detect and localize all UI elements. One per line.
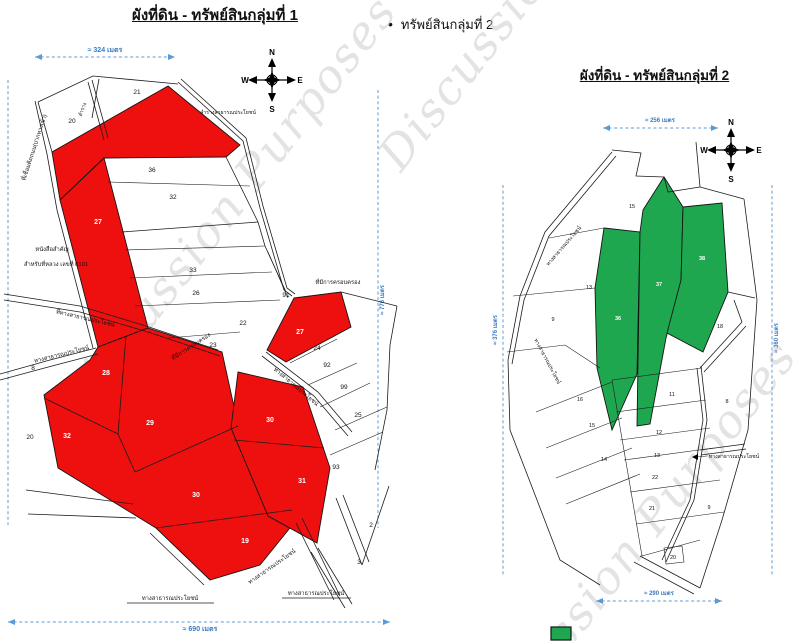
parcel-number: 91 [282, 292, 290, 299]
parcel-number: 20 [26, 434, 34, 441]
maps-canvas: Discussion Purposes Discussion Purposes … [0, 0, 793, 641]
parcel-number: 21 [649, 506, 655, 512]
measure-bottom-label: ≈ 690 เมตร [183, 626, 218, 633]
measure-top-label: ≈ 324 เมตร [88, 47, 123, 54]
parcel-number: 21 [133, 89, 141, 96]
measure-left-label: ≈ 376 เมตร [492, 314, 499, 345]
parcel-number: 26 [192, 290, 200, 297]
annotation-occupied: ที่มีการครอบครอง [315, 278, 360, 286]
measure-right-label: ≈ 360 เมตร [773, 322, 780, 353]
parcel-number: 9 [707, 505, 710, 511]
parcel-number: 31 [298, 478, 306, 485]
annotation-deed-line2: สำหรับที่หลวง เลขที่ 0101 [24, 260, 88, 268]
parcel-number: 30 [266, 417, 274, 424]
annotation-public-road-underlined: ทางสาธารณประโยชน์ [288, 589, 344, 597]
parcel-number: 8 [725, 399, 728, 405]
green-parcel [595, 228, 640, 430]
parcel-number: 36 [615, 316, 621, 322]
parcel-number: 15 [589, 423, 595, 429]
compass-n: N [269, 48, 275, 57]
parcel-number: 20 [670, 555, 676, 561]
parcel-number: 22 [239, 320, 247, 327]
parcel-number: 27 [296, 329, 304, 336]
parcel-number: 8 [31, 365, 35, 372]
parcel-number: 16 [577, 397, 583, 403]
parcel-number: 92 [323, 362, 331, 369]
parcel-number: 36 [148, 167, 156, 174]
measure-bottom-label: ≈ 290 เมตร [644, 590, 675, 597]
annotation-public-road: ทางสาธารณประโยชน์ [545, 224, 584, 267]
parcel-number: 2 [369, 522, 373, 529]
parcel-number: 23 [209, 342, 217, 349]
parcel-number: 28 [102, 370, 110, 377]
parcel-number: 14 [601, 457, 607, 463]
measure-right-label: ≈ 776 เมตร [379, 284, 386, 315]
parcel-number: 18 [717, 324, 723, 330]
parcel-number: 27 [94, 219, 102, 226]
annotation-public-road-arrow: ทางสาธารณประโยชน์ [709, 453, 760, 460]
compass-n: N [728, 118, 734, 127]
compass-w: W [241, 76, 249, 85]
parcel-number: 24 [313, 345, 321, 352]
parcel-number: 29 [146, 420, 154, 427]
parcel-number: 13 [654, 453, 660, 459]
parcel-number: 19 [241, 538, 249, 545]
compass-e: E [297, 76, 303, 85]
right-green-parcels: 36 37 38 [595, 177, 728, 430]
watermark-text: Discussion Purposes [366, 0, 727, 181]
parcel-number: 20 [68, 118, 76, 125]
parcel-number: 15 [629, 204, 635, 210]
parcel-number: 13 [586, 285, 592, 291]
compass-w: W [700, 146, 708, 155]
left-red-parcels: 27 27 28 29 30 19 32 30 31 [44, 86, 351, 580]
annotation-connecting-road: ที่เชื่อมติดถนน(ปากทางเข้า) [20, 113, 49, 182]
annotation-deed-line1: หนังสือสำคัญ [35, 245, 68, 253]
parcel-number: 33 [189, 267, 197, 274]
parcel-number: 30 [192, 492, 200, 499]
annotation-public-canal: ลำรางสาธารณประโยชน์ [200, 109, 256, 116]
compass-s: S [728, 175, 734, 184]
compass-s: S [269, 105, 275, 114]
parcel-number: 3 [357, 559, 361, 566]
red-parcel [267, 292, 351, 362]
parcel-number: 22 [652, 475, 658, 481]
parcel-number: 9 [551, 317, 554, 323]
annotation-public-road: ทางสาธารณประโยชน์ [532, 337, 562, 385]
legend-swatch-group2 [551, 627, 571, 640]
parcel-number: 38 [699, 256, 705, 262]
parcel-number: 99 [340, 384, 348, 391]
parcel-number: 93 [332, 464, 340, 471]
parcel-number: 32 [169, 194, 177, 201]
parcel-number: 12 [656, 430, 662, 436]
parcel-number: 37 [656, 282, 662, 288]
measure-top-label: ≈ 256 เมตร [645, 117, 676, 124]
annotation-canal: ลำราง [77, 101, 89, 117]
parcel-number: 25 [354, 412, 362, 419]
compass-e: E [756, 146, 762, 155]
left-map: ≈ 324 เมตร ≈ 776 เมตร ≈ 690 เมตร N S W E [0, 47, 397, 633]
annotation-public-road-underlined: ทางสาธารณประโยชน์ [142, 594, 198, 602]
parcel-number: 32 [63, 433, 71, 440]
parcel-number: 11 [669, 392, 675, 398]
